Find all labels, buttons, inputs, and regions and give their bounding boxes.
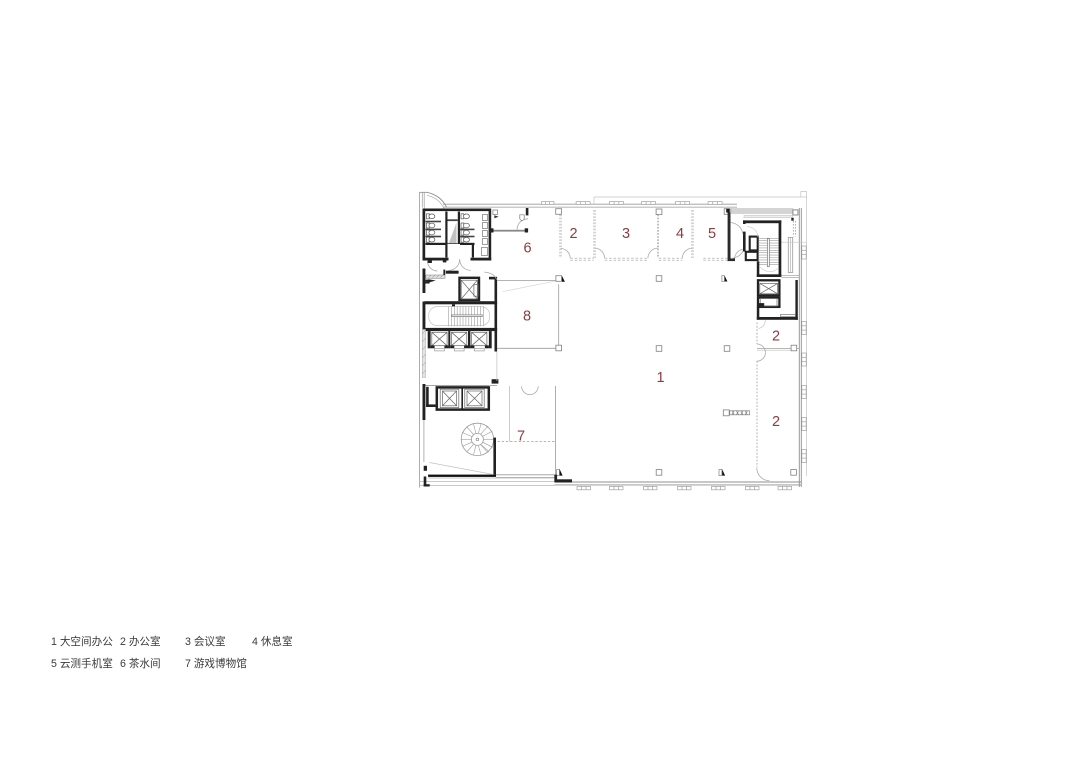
svg-text:8: 8 xyxy=(523,309,531,325)
svg-text:2: 2 xyxy=(772,414,780,430)
svg-text:5: 5 xyxy=(708,226,716,242)
svg-text:7: 7 xyxy=(517,429,525,445)
svg-text:6: 6 xyxy=(523,241,531,257)
svg-text:4: 4 xyxy=(676,226,684,242)
svg-text:2: 2 xyxy=(772,329,780,345)
svg-text:1: 1 xyxy=(656,370,664,386)
svg-text:2: 2 xyxy=(569,226,577,242)
svg-text:3: 3 xyxy=(622,226,630,242)
